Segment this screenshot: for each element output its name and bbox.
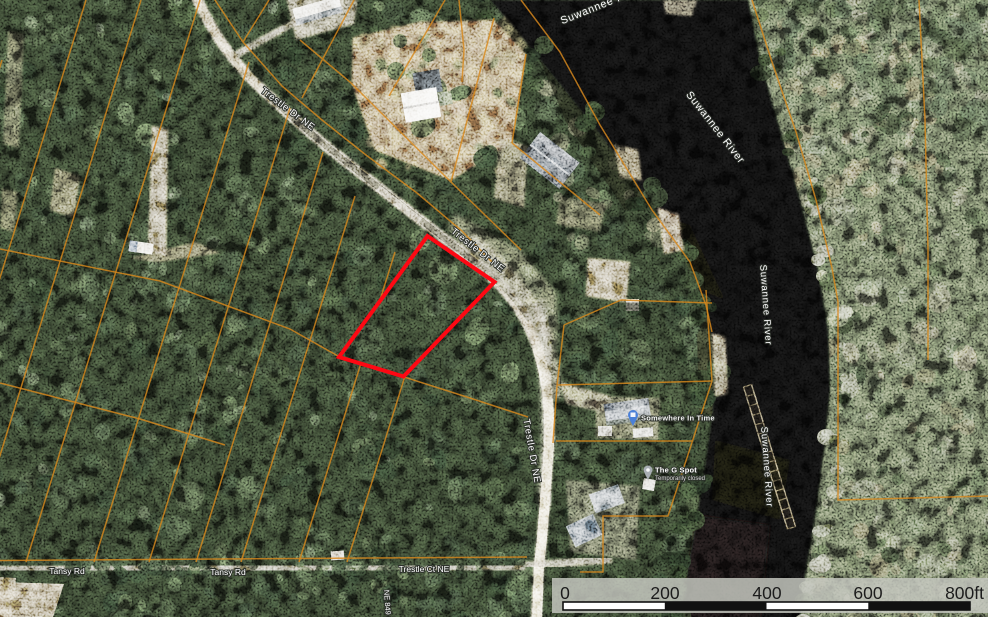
- svg-text:Tansy Rd: Tansy Rd: [49, 566, 85, 576]
- svg-text:0: 0: [560, 583, 570, 603]
- svg-text:200: 200: [650, 583, 679, 603]
- svg-text:Temporarily closed: Temporarily closed: [655, 476, 705, 482]
- svg-text:800ft: 800ft: [945, 583, 984, 603]
- svg-text:The G Spot: The G Spot: [655, 466, 697, 475]
- svg-text:Trestle Ct NE: Trestle Ct NE: [399, 564, 450, 574]
- svg-text:NE 849 St: NE 849 St: [382, 590, 393, 617]
- svg-text:600: 600: [853, 583, 882, 603]
- svg-text:Tansy Rd: Tansy Rd: [210, 567, 246, 577]
- svg-text:400: 400: [752, 583, 781, 603]
- svg-text:Somewhere In Time: Somewhere In Time: [641, 414, 715, 423]
